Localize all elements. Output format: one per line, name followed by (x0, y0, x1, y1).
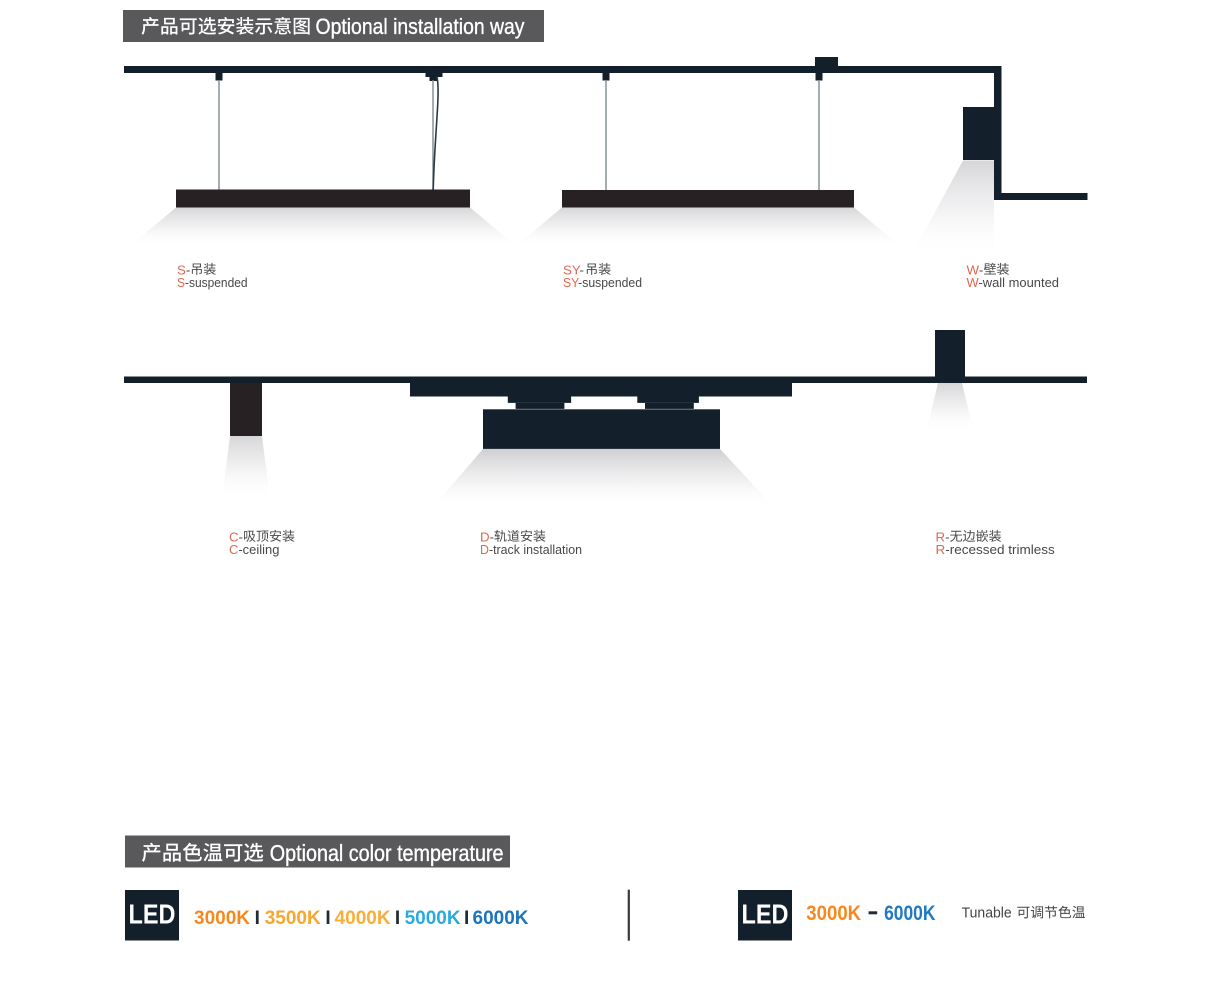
svg-text:I: I (464, 908, 469, 929)
svg-text:I: I (395, 908, 400, 929)
svg-text:Optional installation way: Optional installation way (316, 14, 525, 39)
svg-text:Tunable: Tunable (962, 904, 1012, 921)
svg-text:D-track installation: D-track installation (480, 542, 582, 557)
svg-text:S-suspended: S-suspended (177, 275, 248, 290)
svg-text:3500K: 3500K (265, 908, 321, 929)
svg-text:Optional color temperature: Optional color temperature (270, 840, 504, 866)
svg-text:6000K: 6000K (884, 902, 935, 925)
svg-text:4000K: 4000K (335, 908, 391, 929)
svg-text:I: I (255, 908, 260, 929)
svg-text:I: I (325, 908, 330, 929)
svg-text:R-recessed trimless: R-recessed trimless (936, 542, 1056, 557)
svg-text:W-wall mounted: W-wall mounted (967, 275, 1060, 290)
svg-text:3000K: 3000K (194, 908, 250, 929)
svg-text:5000K: 5000K (405, 908, 461, 929)
svg-text:6000K: 6000K (473, 908, 529, 929)
svg-text:SY-suspended: SY-suspended (563, 275, 642, 290)
svg-text:LED: LED (742, 899, 789, 930)
svg-text:C-ceiling: C-ceiling (229, 542, 279, 557)
svg-text:3000K: 3000K (806, 902, 861, 925)
svg-text:LED: LED (129, 899, 176, 930)
